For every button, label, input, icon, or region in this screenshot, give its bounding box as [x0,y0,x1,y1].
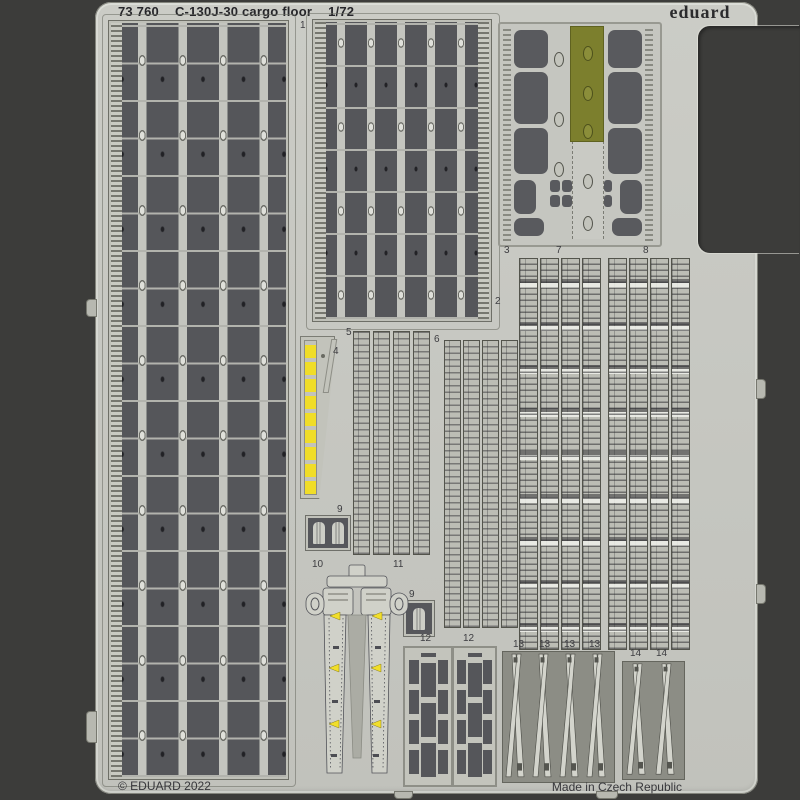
oval-fitting [583,174,593,189]
part-label-2: 2 [495,297,501,307]
part-label-11: 11 [393,560,403,570]
v-struts [503,652,612,780]
rail-strip [650,258,669,650]
rail-strip [540,258,559,650]
part-label-8: 8 [643,246,649,256]
panel-blob [514,180,536,214]
rail-strip [353,331,370,555]
panel-square [550,195,560,207]
part-label-4: 4 [333,347,339,357]
part-3-ramp-panel [498,22,662,247]
rail-strip [671,258,690,650]
part-1-cargo-floor-panel [109,21,288,779]
panel-blob [514,72,548,124]
perforated-edge-strip [477,22,489,319]
panel-blob [620,180,642,214]
rail-strip [444,340,461,628]
part-label-14: 14 [630,649,641,659]
panel-square [562,180,572,192]
fret-tab-right-upper [757,380,765,398]
part-12-panel-a [403,646,453,787]
perforated-edge-strip [503,28,511,241]
panel-blob [514,128,548,174]
oval-fitting [554,112,564,127]
part-6-rail-strips [444,340,516,628]
panel-blob [514,218,544,236]
rail-strip [561,258,580,650]
part-label-13: 13 [589,640,600,650]
floor-grid-pattern [122,23,286,777]
fret-tab-left-upper [87,300,96,316]
photoetch-sheet-scan: 73 760 C-130J-30 cargo floor 1/72 eduard [0,0,800,800]
panel-blob [514,30,548,68]
part-label-7: 7 [556,246,562,256]
part-label-12: 12 [420,634,431,644]
part-label-1: 1 [300,21,306,31]
part-label-6: 6 [434,335,440,345]
rail-strip [413,331,430,555]
part-9-box-a [306,516,350,550]
oval-fitting [583,46,593,61]
rail-strip [393,331,410,555]
panel-blob [608,128,642,174]
rail-strip [629,258,648,650]
part-7-rail-strips [519,258,599,650]
rail-strip [608,258,627,650]
arch-piece [412,607,426,631]
rail-strip [519,258,538,650]
rivet-dot [321,354,325,358]
part-label-5: 5 [346,328,352,338]
panel-blob [608,30,642,68]
part-13-strut-block [502,651,615,783]
rail-strip [482,340,499,628]
panel-blob [608,72,642,124]
rail-strip [501,340,518,628]
panel-square [550,180,560,192]
perforated-edge-strip [645,28,653,241]
made-in-text: Made in Czech Republic [530,780,682,794]
v-struts [623,662,682,777]
oval-fitting [554,162,564,177]
part-label-13: 13 [564,640,575,650]
part-label-3: 3 [504,246,510,256]
rail-strip [373,331,390,555]
fret-cutout [698,26,800,253]
yellow-segments [304,340,317,495]
fret-tab-bottom-left [395,792,412,798]
part-label-14: 14 [656,649,667,659]
panel-square [604,180,612,192]
oval-fitting [583,124,593,139]
copyright-text: © EDUARD 2022 [118,779,211,793]
panel-blob [612,218,642,236]
oval-fitting [554,52,564,67]
rail-strip [463,340,480,628]
floor-grid-pattern [326,22,478,319]
part-5-rail-strips [353,331,429,555]
part-14-strut-block [622,661,685,780]
arch-piece [331,521,345,545]
part-8-rail-strips [608,258,688,650]
fret-tab-right-lower [757,585,765,603]
part-label-13: 13 [513,640,524,650]
oval-fitting [583,86,593,101]
rail-strip [582,258,601,650]
arch-piece [312,521,326,545]
part-12-panel-b [452,646,497,787]
fret-tab-left-lower [87,712,96,742]
panel-square [604,195,612,207]
part-label-10: 10 [312,560,323,570]
part-2-cargo-floor-panel [313,20,491,321]
part-label-12: 12 [463,634,474,644]
eduard-logo: eduard [652,2,748,23]
part-10-11-support-legs [304,562,410,778]
part-label-9: 9 [409,590,415,600]
part-label-9: 9 [337,505,343,515]
panel-square [562,195,572,207]
oval-fitting [583,216,593,231]
part-label-13: 13 [539,640,550,650]
